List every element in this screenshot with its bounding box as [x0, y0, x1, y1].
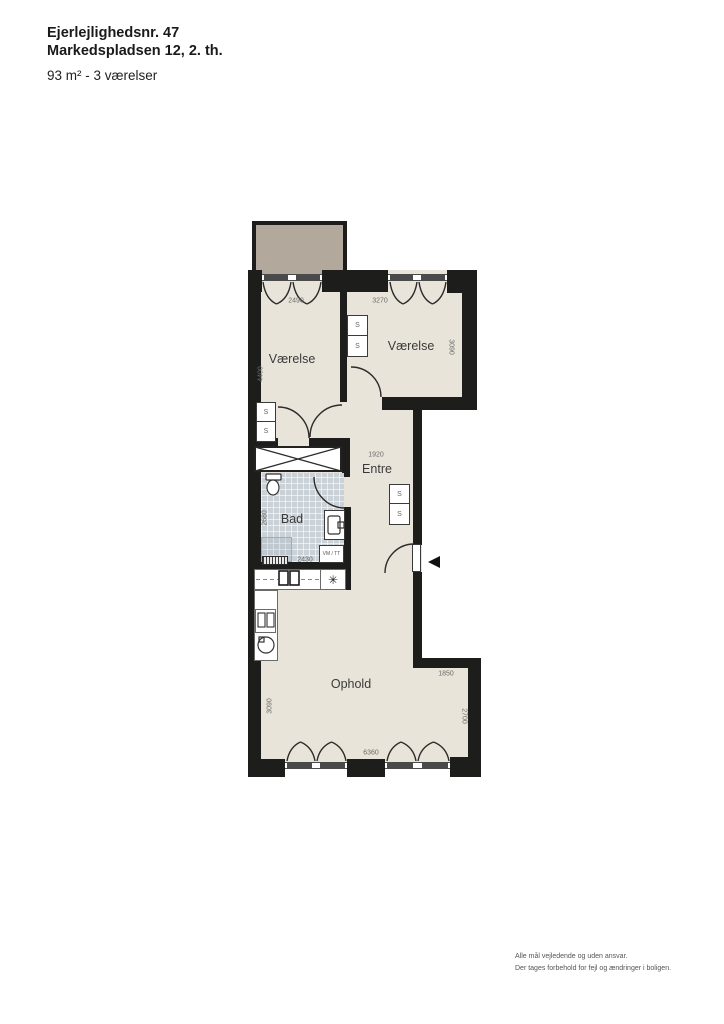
disclaimer-line2: Der tages forbehold for fejl og ændringe… [515, 963, 671, 975]
entrance-arrow-icon [428, 556, 440, 568]
floorplan-page: Ejerlejlighedsnr. 47 Markedspladsen 12, … [0, 0, 724, 1024]
dim-living-depth: 3090 [267, 698, 274, 714]
disclaimer-line1: Alle mål vejledende og uden ansvar. [515, 951, 671, 963]
dim-bath-depth: 2680 [262, 510, 269, 526]
bedroom1-door-arc [310, 405, 342, 437]
dim-bath-width: 2430 [297, 557, 313, 564]
room-label-bedroom1: Værelse [269, 352, 316, 366]
dim-living-ext-depth: 2700 [461, 708, 468, 724]
wardrobe-door-arc [278, 407, 309, 438]
dim-bedroom2-depth: 3090 [448, 339, 455, 355]
bedroom2-door-arc [351, 367, 381, 397]
wardrobe-cross-icon [255, 447, 341, 471]
disclaimer: Alle mål vejledende og uden ansvar. Der … [515, 951, 671, 974]
room-label-bedroom2: Værelse [388, 339, 435, 353]
room-label-living: Ophold [331, 677, 371, 691]
bath-sink-icon [328, 516, 344, 534]
room-label-bath: Bad [281, 512, 303, 526]
kitchen-sink-icon [258, 613, 274, 627]
dim-bedroom1-depth: 4400 [258, 366, 265, 382]
dim-living-ext-width: 1850 [438, 671, 454, 678]
room-label-entry: Entre [362, 462, 392, 476]
dim-living-width: 6360 [363, 750, 379, 757]
round-sink-icon [258, 637, 274, 653]
dim-entry-width: 1920 [368, 452, 384, 459]
toilet-icon [266, 474, 281, 495]
entrance-door-arc [385, 544, 414, 573]
dim-bedroom1-width: 2490 [288, 298, 304, 305]
plan-symbols [0, 0, 724, 1024]
dim-bedroom2-width: 3270 [372, 298, 388, 305]
bathroom-door-arc [314, 477, 345, 508]
stove-icon [279, 571, 299, 585]
